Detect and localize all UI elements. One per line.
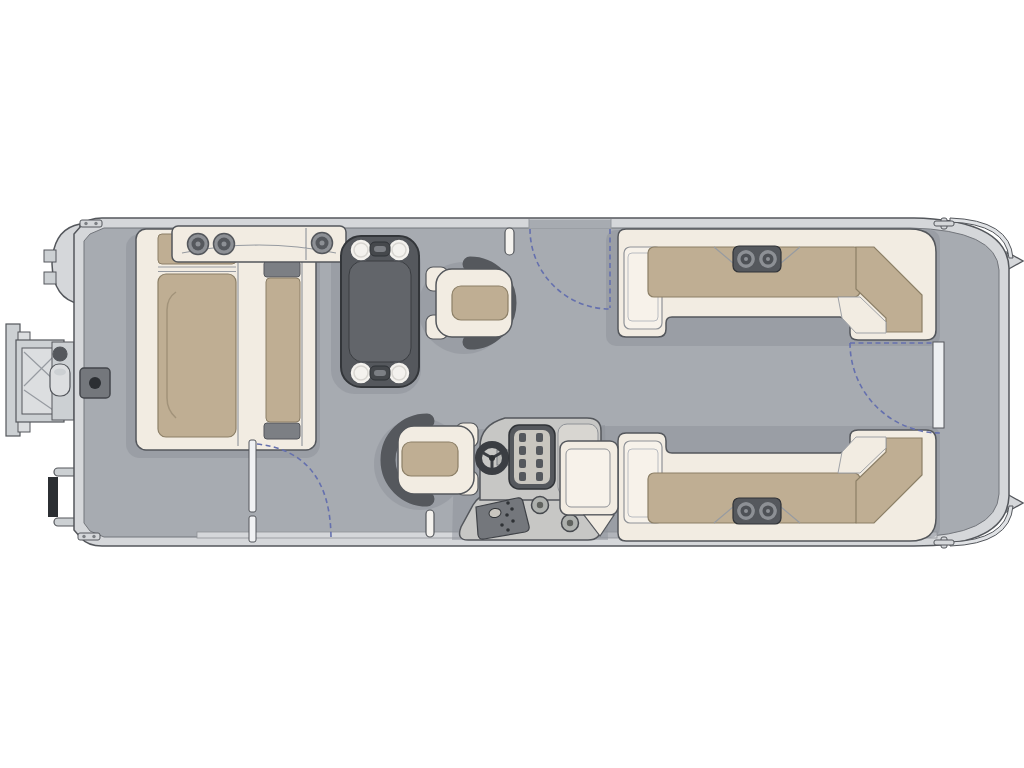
bow-nose-tab (44, 272, 56, 284)
ski-tow-base (80, 368, 110, 398)
ladder-cylinder-top (54, 369, 66, 376)
hinge-screw (92, 535, 95, 538)
switch (506, 501, 510, 505)
port-gate-opening (529, 220, 611, 229)
stern-cleat-top (934, 221, 954, 226)
switch (506, 528, 510, 532)
switch (505, 513, 509, 517)
floorplan-canvas (0, 0, 1024, 768)
bow-gate-post (249, 440, 256, 512)
table-handle-grip (374, 246, 386, 252)
table-surface (349, 261, 411, 362)
bow-gate-post (249, 516, 256, 542)
cup-holder-center (744, 257, 748, 261)
gauge-slot (519, 433, 526, 442)
gauge-slot (519, 459, 526, 468)
table (341, 236, 419, 387)
cup-holder-center (196, 242, 201, 247)
switch (500, 523, 504, 527)
stern-gate-post (933, 342, 944, 428)
armrest-panel (566, 449, 610, 507)
switch (511, 519, 515, 523)
hinge-screw (94, 222, 97, 225)
table-handle-grip (374, 370, 386, 376)
bow-nose-tab (44, 250, 56, 262)
cup-holder-center (320, 241, 325, 246)
bow-bench-cushion (266, 278, 300, 422)
chair-cushion (452, 286, 508, 320)
gauge-slot (536, 433, 543, 442)
dashboard (509, 425, 555, 489)
cup-holder-center (222, 242, 227, 247)
stern-cleat-bottom (934, 540, 954, 545)
grab-handle (505, 228, 514, 255)
bow-gate-hinge-bottom (78, 533, 100, 540)
bow-bench-cap (264, 261, 300, 277)
gauge-slot (536, 446, 543, 455)
bow-ladder (6, 324, 74, 436)
ladder-knob (53, 347, 67, 361)
gauge-slot (536, 472, 543, 481)
bow-gate-hinge-top (80, 220, 102, 227)
speaker-center (537, 502, 543, 508)
grab-handle (426, 510, 434, 537)
wheel-hub (489, 455, 495, 461)
helm-chair (388, 421, 478, 499)
hinge-screw (84, 222, 87, 225)
port-captain-chair (426, 264, 512, 342)
chair-cushion (402, 442, 458, 476)
hinge-screw (82, 535, 85, 538)
pontoon-floorplan (0, 0, 1024, 768)
fender-bumper (48, 477, 58, 517)
tow-base-socket (89, 377, 101, 389)
gauge-slot (519, 472, 526, 481)
gauge-slot (536, 459, 543, 468)
bow-lounge (136, 226, 346, 450)
bow-bench-cap (264, 423, 300, 439)
speaker-center (567, 520, 573, 526)
switch (510, 507, 514, 511)
cup-holder-center (766, 257, 770, 261)
gauge-slot (519, 446, 526, 455)
